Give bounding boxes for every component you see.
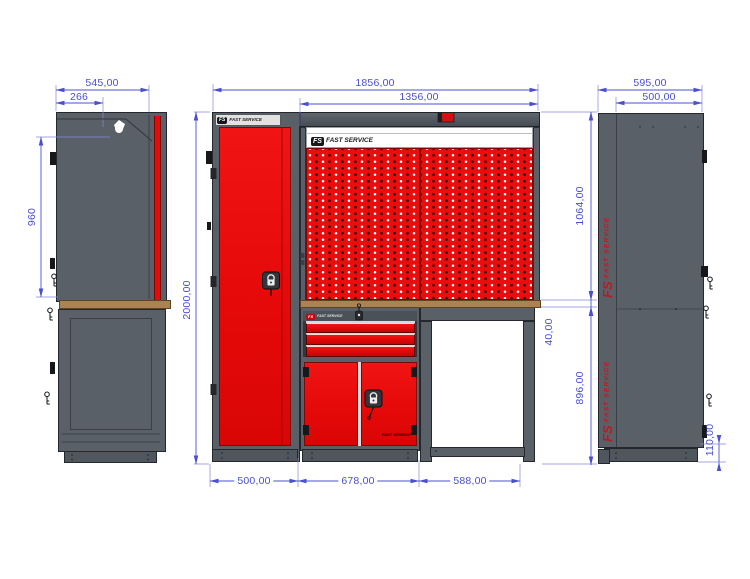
dim-left-upper-height: 960	[27, 208, 38, 226]
door-brand-label: FAST SERVICE	[382, 432, 411, 437]
key-icon	[45, 392, 50, 404]
key-icon	[708, 277, 713, 289]
dim-front-lower-height: 896,00	[575, 371, 586, 404]
key-icon	[48, 308, 53, 320]
brand-name-label: FAST SERVICE	[326, 138, 373, 145]
key-icon	[704, 306, 709, 318]
dim-left-top-bracket: 266	[70, 92, 88, 103]
dim-left-total-depth: 545,00	[85, 78, 118, 89]
bracket-tab-icon	[50, 362, 55, 374]
right-view-base-bracket	[598, 449, 610, 464]
bracket-tab-icon	[50, 258, 55, 269]
dim-front-panel-width: 1356,00	[399, 92, 438, 103]
top-rail	[300, 112, 540, 127]
bench-leg-left	[420, 321, 432, 462]
left-view-base	[64, 451, 157, 463]
left-view-door-panel	[70, 318, 152, 430]
brand-name-label: FAST SERVICE	[604, 361, 611, 422]
dim-front-total-height: 2000,00	[182, 280, 193, 319]
technical-drawing-canvas: FS FAST SERVICE FS FAST SERVICE FS FAST …	[0, 0, 750, 579]
drawer-1	[306, 323, 415, 333]
dim-middle-width: 678,00	[338, 476, 377, 487]
fs-logo-icon: FS	[217, 117, 227, 124]
dim-right-body-depth: 500,00	[642, 92, 675, 103]
vertical-brand-logo-upper: FS FAST SERVICE	[600, 150, 615, 298]
fs-logo-icon: FS	[306, 314, 315, 320]
bracket-tab-icon	[207, 222, 211, 230]
brand-name-label: FAST SERVICE	[604, 217, 611, 278]
dim-front-total-width: 1856,00	[355, 78, 394, 89]
panel-header-line	[306, 133, 533, 134]
drawer-2	[306, 334, 415, 345]
dim-right-base-height: 110,00	[705, 424, 716, 457]
vertical-brand-logo-lower: FS FAST SERVICE	[600, 312, 615, 442]
dim-bench-width: 588,00	[450, 476, 489, 487]
middle-cabinet-base	[302, 449, 418, 462]
left-view-wall-panel-edge	[154, 116, 161, 300]
left-view-worktop	[59, 300, 171, 309]
bench-top-beam	[420, 307, 535, 321]
panel-logo: FS FAST SERVICE	[311, 135, 373, 147]
drawer-rail-right	[415, 321, 418, 357]
dim-right-total-depth: 595,00	[633, 78, 666, 89]
fs-logo-icon: FS	[601, 281, 614, 298]
bench-bottom-beam	[430, 447, 525, 457]
dim-front-panel-height: 1064,00	[575, 186, 586, 225]
key-icon	[707, 394, 712, 406]
fs-logo-icon: FS	[311, 137, 324, 146]
drawer-unit-logo: FS FAST SERVICE	[306, 313, 342, 320]
tall-cabinet-base	[212, 449, 298, 462]
brand-name-label: FAST SERVICE	[317, 315, 342, 319]
tall-cabinet-logo-strip: FS FAST SERVICE	[215, 114, 281, 126]
dim-worktop-thickness: 40,00	[544, 318, 555, 345]
drawer-3	[306, 346, 415, 357]
wall-upright-right	[533, 127, 540, 301]
tall-cabinet-door	[219, 127, 291, 446]
pegboard-divider	[419, 149, 421, 299]
brand-name-label: FAST SERVICE	[229, 118, 262, 123]
bench-leg-right	[523, 321, 535, 462]
cabinet-door-left	[304, 362, 358, 446]
right-view-base	[604, 448, 698, 462]
front-worktop	[300, 300, 541, 308]
left-view-upper-body	[56, 112, 167, 302]
right-view-front-edge-line	[616, 114, 617, 447]
fs-logo-icon: FS	[601, 425, 614, 442]
dim-cabinet-width: 500,00	[234, 476, 273, 487]
